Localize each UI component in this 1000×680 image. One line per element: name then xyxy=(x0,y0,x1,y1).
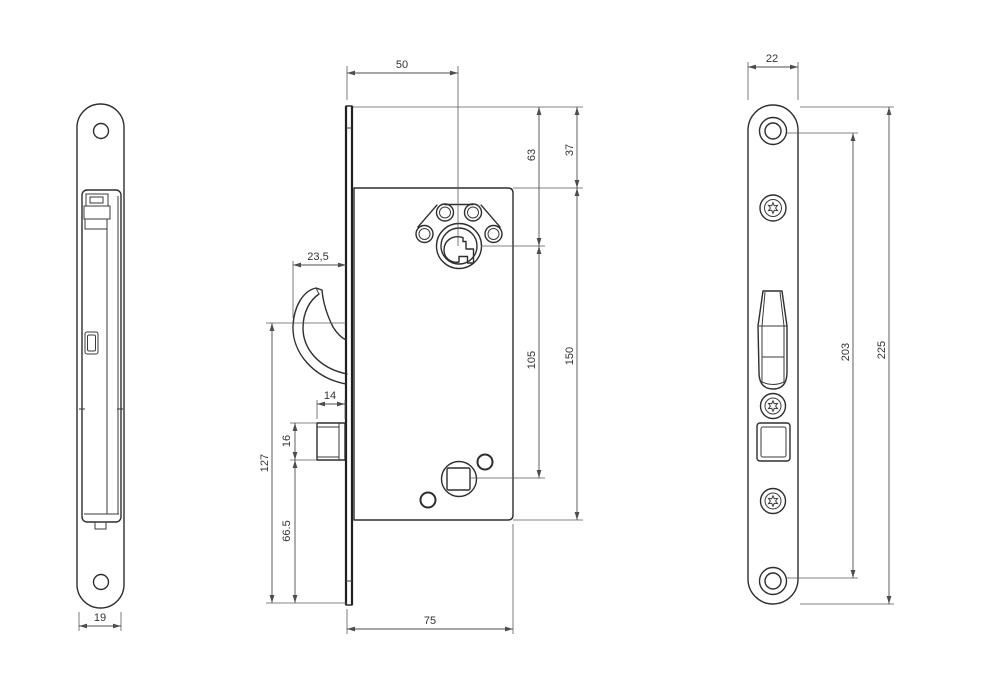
side-mech-block-4 xyxy=(85,219,107,229)
dim-150-label: 150 xyxy=(564,347,576,365)
dim-37-label: 37 xyxy=(564,144,576,156)
faceplate-bottom-hole-outer xyxy=(760,568,787,595)
side-case-bottom-tab xyxy=(95,522,106,529)
cylinder-hole xyxy=(416,204,502,269)
side-mech-block-2 xyxy=(90,197,103,203)
dim-19-label: 19 xyxy=(94,612,106,624)
side-lock-case xyxy=(82,190,121,522)
side-mech-block-3 xyxy=(84,206,110,219)
dim-63-label: 63 xyxy=(526,149,538,161)
keyway-profile xyxy=(444,237,474,263)
follower-hole xyxy=(442,462,477,497)
dim-22-label: 22 xyxy=(766,53,778,65)
cylinder-pin-left-inner xyxy=(419,229,430,240)
faceplate-outline xyxy=(748,105,798,604)
dim-16-label: 16 xyxy=(281,435,293,447)
dim-203-label: 203 xyxy=(840,343,852,361)
hook-front-bottom-arc xyxy=(762,382,784,385)
torx-lower-star xyxy=(769,496,778,506)
side-top-screw-hole xyxy=(94,124,109,139)
dim-235-label: 23,5 xyxy=(307,251,328,263)
follower-square xyxy=(447,468,470,490)
dim-665-label: 66.5 xyxy=(281,520,293,541)
dim-75-label: 75 xyxy=(424,615,436,627)
faceplate-top-hole-inner xyxy=(765,123,781,139)
case-rivet-lower xyxy=(421,493,436,508)
hook-outer-edge xyxy=(293,288,346,384)
hook-bolt-front xyxy=(758,291,787,389)
technical-drawing-lock: 19 xyxy=(0,0,1000,680)
torx-upper-star xyxy=(769,203,778,213)
torx-middle-star xyxy=(769,401,778,411)
side-bottom-screw-hole xyxy=(94,575,109,590)
cylinder-tangent-right xyxy=(481,205,500,227)
dim-225-label: 225 xyxy=(876,341,888,359)
faceplate-view: 22 203 225 xyxy=(748,53,894,604)
deadbolt-front xyxy=(757,423,790,461)
dim-105-label: 105 xyxy=(526,351,538,369)
dim-50-label: 50 xyxy=(396,59,408,71)
faceplate-top-hole-outer xyxy=(760,118,787,145)
deadbolt-front-outline xyxy=(757,423,790,461)
torx-screw-middle xyxy=(761,394,786,419)
deadbolt-front-inner xyxy=(761,427,786,457)
deadbolt xyxy=(317,423,345,460)
side-mech-block-1 xyxy=(86,194,108,206)
side-latch-inner xyxy=(88,335,96,351)
deadbolt-outline xyxy=(317,423,345,460)
torx-screw-lower xyxy=(761,489,786,514)
cylinder-tangent-left xyxy=(418,205,437,227)
case-rivet-upper xyxy=(478,455,493,470)
torx-upper-outer xyxy=(760,195,786,221)
torx-lower-outer xyxy=(761,489,786,514)
dim-127-label: 127 xyxy=(259,454,271,472)
faceplate-bottom-hole-inner xyxy=(765,573,781,589)
cylinder-pin-top-right-inner xyxy=(468,207,479,218)
torx-screw-upper xyxy=(760,195,786,221)
side-latch-detail xyxy=(85,332,98,354)
side-hook-mechanism xyxy=(84,194,110,233)
torx-middle-outer xyxy=(761,394,786,419)
cylinder-pin-top-left-inner xyxy=(440,207,451,218)
hook-bolt xyxy=(293,288,347,384)
faceplate-edge xyxy=(346,106,352,605)
dim-14-label: 14 xyxy=(324,390,336,402)
side-view: 19 xyxy=(77,104,124,631)
side-plate-outline xyxy=(77,104,124,608)
front-view: 50 23,5 127 16 66.5 14 63 105 37 xyxy=(259,59,583,634)
cylinder-pin-right-inner xyxy=(488,229,499,240)
